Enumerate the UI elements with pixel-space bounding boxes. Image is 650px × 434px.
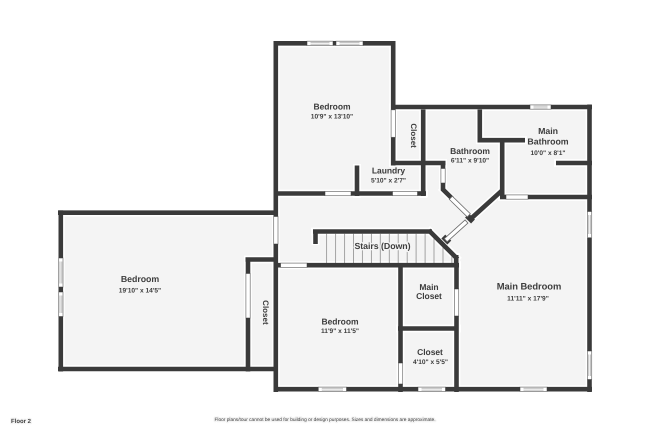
svg-text:Bedroom: Bedroom bbox=[322, 317, 359, 327]
svg-text:Bathroom: Bathroom bbox=[527, 136, 568, 146]
svg-text:Closet: Closet bbox=[417, 347, 443, 357]
svg-text:Closet: Closet bbox=[416, 291, 442, 301]
svg-text:11'9" x 11'5": 11'9" x 11'5" bbox=[321, 328, 359, 335]
svg-text:Laundry: Laundry bbox=[372, 166, 406, 176]
svg-text:Closet: Closet bbox=[261, 300, 270, 325]
svg-text:Floor 2: Floor 2 bbox=[11, 418, 32, 425]
svg-text:11'11" x 17'9": 11'11" x 17'9" bbox=[507, 296, 549, 303]
svg-text:Closet: Closet bbox=[409, 123, 418, 148]
svg-text:10'0" x 8'1": 10'0" x 8'1" bbox=[530, 150, 565, 157]
svg-text:4'10" x 5'5": 4'10" x 5'5" bbox=[413, 359, 448, 366]
svg-text:Bedroom: Bedroom bbox=[314, 102, 351, 112]
svg-text:19'10" x 14'5": 19'10" x 14'5" bbox=[119, 288, 161, 295]
svg-text:10'9" x 13'10": 10'9" x 13'10" bbox=[311, 113, 353, 120]
svg-text:Floor plans/tour cannot be use: Floor plans/tour cannot be used for buil… bbox=[214, 417, 435, 423]
svg-text:6'11" x 9'10": 6'11" x 9'10" bbox=[451, 158, 489, 165]
svg-text:Bathroom: Bathroom bbox=[450, 146, 490, 156]
svg-text:Bedroom: Bedroom bbox=[121, 274, 159, 284]
svg-text:Main: Main bbox=[538, 126, 558, 136]
svg-text:Stairs (Down): Stairs (Down) bbox=[354, 241, 410, 251]
svg-text:Main Bedroom: Main Bedroom bbox=[497, 281, 562, 292]
svg-text:5'10" x 2'7": 5'10" x 2'7" bbox=[371, 178, 406, 185]
